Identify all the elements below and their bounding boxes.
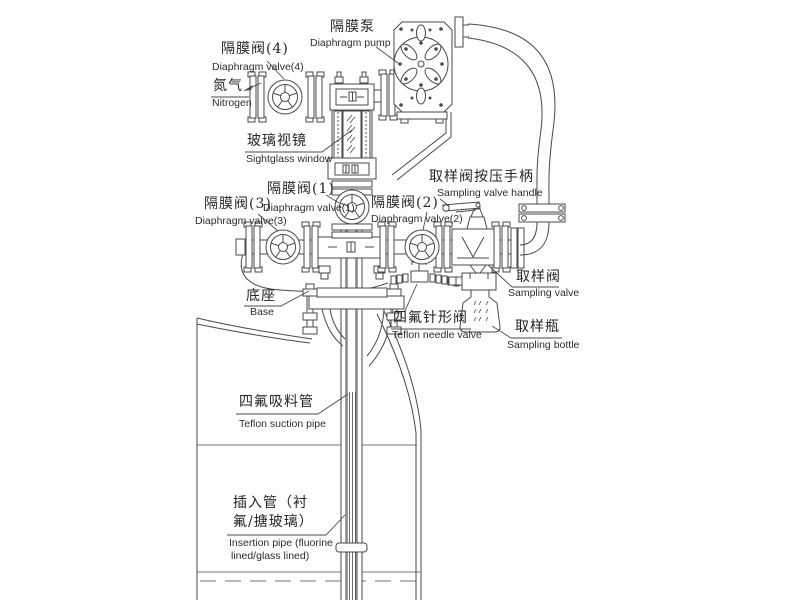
label-insertion-pipe-zh-2: 氟/搪玻璃） [233, 515, 314, 530]
label-diaphragm-valve3-zh: 隔膜阀(3) [204, 197, 272, 212]
label-diaphragm-pump-zh: 隔膜泵 [330, 20, 375, 35]
label-needle-valve-zh: 四氟针形阀 [393, 311, 468, 326]
pipe-coupling [336, 543, 367, 552]
label-diaphragm-valve1-en: Diaphragm valve(1) [263, 203, 355, 215]
diaphragm-valve-4-drawing [248, 72, 324, 122]
label-diaphragm-valve4-en: Diaphragm valve(4) [212, 62, 304, 74]
diagram-page: 隔膜泵 Diaphragm pump 隔膜阀(4) Diaphragm valv… [0, 0, 800, 600]
cross-block [330, 72, 374, 110]
label-suction-pipe-zh: 四氟吸料管 [239, 395, 314, 410]
label-insertion-pipe-zh-1: 插入管（衬 [233, 496, 308, 511]
label-diaphragm-valve2-en: Diaphragm valve(2) [371, 214, 463, 226]
label-nitrogen-zh: 氮气 [213, 79, 243, 94]
label-sampling-valve-en: Sampling valve [508, 288, 579, 300]
label-sampling-bottle-en: Sampling bottle [507, 340, 579, 352]
label-diaphragm-pump-en: Diaphragm pump [310, 38, 391, 50]
label-diaphragm-valve1-zh: 隔膜阀(1) [267, 182, 335, 197]
diagram-svg [0, 0, 800, 600]
return-pipe-flange [519, 204, 565, 222]
label-diaphragm-valve3-en: Diaphragm valve(3) [195, 216, 287, 228]
manifold-end-cap [236, 239, 245, 255]
label-sightglass-en: Sightglass window [246, 154, 332, 166]
label-insertion-pipe-en-2: lined/glass lined) [231, 551, 309, 563]
label-insertion-pipe-en-1: Insertion pipe (fluorine [229, 538, 333, 550]
label-base-en: Base [250, 307, 274, 319]
sampling-valve-handle-drawing [443, 202, 480, 212]
label-base-zh: 底座 [246, 289, 276, 304]
label-diaphragm-valve2-zh: 隔膜阀(2) [371, 196, 439, 211]
tee-block [318, 237, 383, 258]
diaphragm-valve-2-drawing [405, 230, 439, 264]
label-needle-valve-en: Teflon needle valve [392, 330, 482, 342]
diaphragm-valve-3-drawing [266, 230, 300, 264]
label-sightglass-zh: 玻璃视镜 [247, 134, 307, 149]
label-sampling-bottle-zh: 取样瓶 [515, 320, 560, 335]
label-sampling-handle-en: Sampling valve handle [437, 188, 543, 200]
label-sampling-handle-zh: 取样阀按压手柄 [429, 170, 534, 185]
label-suction-pipe-en: Teflon suction pipe [239, 419, 326, 431]
label-sampling-valve-zh: 取样阀 [516, 270, 561, 285]
suction-pipe-drawing [336, 230, 367, 600]
sight-glass-drawing [328, 110, 376, 179]
label-nitrogen-en: Nitrogen [212, 98, 252, 110]
label-diaphragm-valve4-zh: 隔膜阀(4) [221, 42, 289, 57]
